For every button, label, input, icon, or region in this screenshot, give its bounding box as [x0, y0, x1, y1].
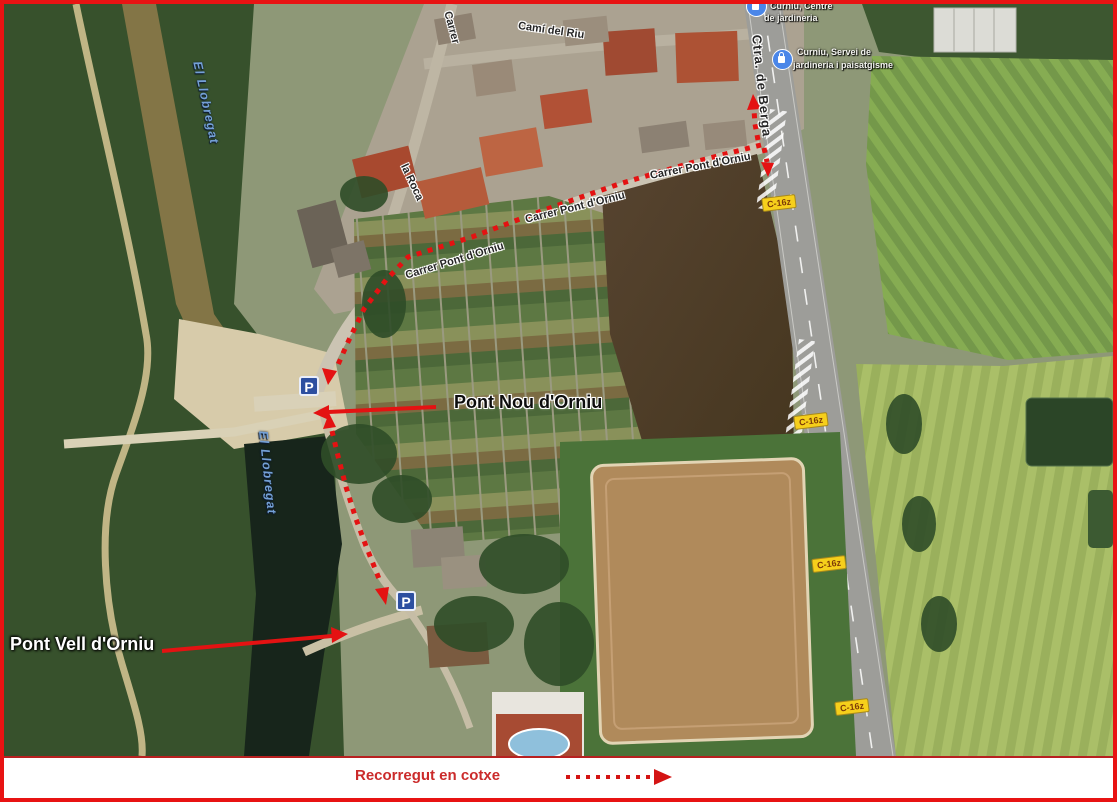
- annotated-map-figure: Camí del Riu Carrer la Roca Carrer Pont …: [0, 0, 1117, 802]
- satellite-map[interactable]: Camí del Riu Carrer la Roca Carrer Pont …: [4, 4, 1113, 756]
- legend-dotted-arrow: [562, 764, 682, 790]
- annotation-pont-vell: Pont Vell d'Orniu: [10, 634, 154, 655]
- annotation-pont-nou: Pont Nou d'Orniu: [454, 392, 602, 413]
- riding-arena: [591, 458, 813, 743]
- terrain-field-topright: [866, 56, 1113, 360]
- legend-route-label: Recorregut en cotxe: [355, 767, 500, 784]
- swimming-pool: [509, 729, 569, 756]
- map-canvas: [4, 4, 1113, 756]
- pond-small: [1088, 490, 1113, 548]
- parking-icon-pont-nou[interactable]: P: [299, 376, 319, 396]
- poi-label-line1: Curniu, Servei de: [797, 46, 871, 58]
- poi-label-line1: Curniu, Centre: [770, 4, 833, 12]
- poi-label-line2: jardineria i paisatgisme: [793, 59, 893, 71]
- shopping-poi-icon[interactable]: [772, 49, 793, 70]
- legend-bar: Recorregut en cotxe: [4, 756, 1113, 798]
- poi-label-line2: de jardineria: [764, 12, 818, 24]
- terrain-layer: [4, 4, 1113, 756]
- parking-icon-pont-vell[interactable]: P: [396, 591, 416, 611]
- pond: [1026, 398, 1113, 466]
